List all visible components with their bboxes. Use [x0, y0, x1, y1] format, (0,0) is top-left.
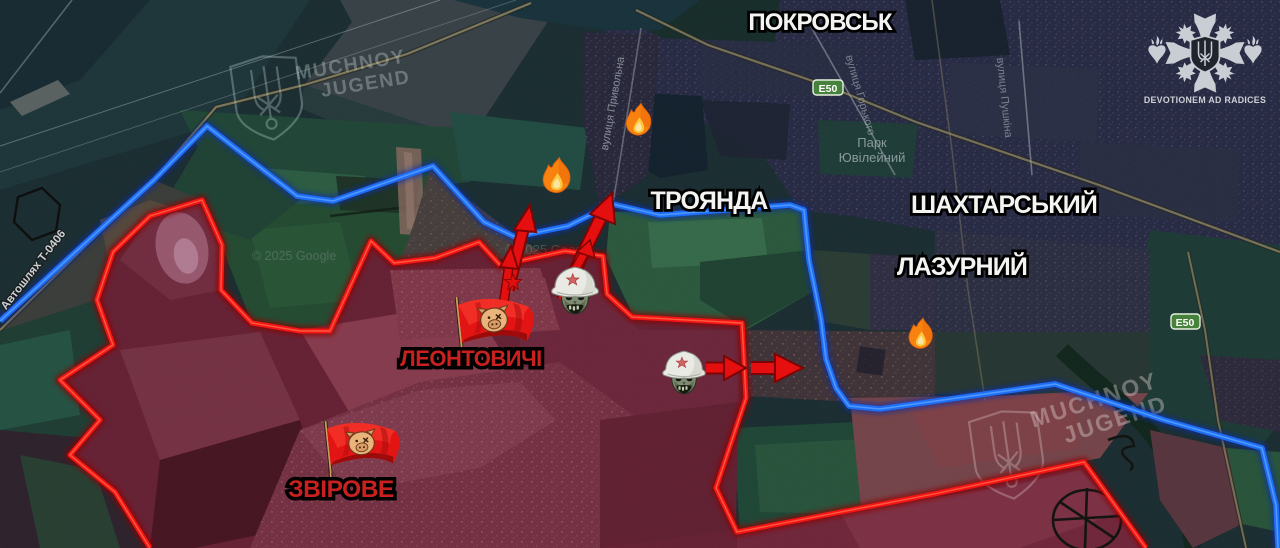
- svg-text:ПОКРОВСЬК: ПОКРОВСЬК: [748, 9, 893, 36]
- svg-text:ЛАЗУРНИЙ: ЛАЗУРНИЙ: [897, 251, 1027, 281]
- svg-text:DEVOTIONEM AD RADICES: DEVOTIONEM AD RADICES: [1144, 95, 1266, 105]
- svg-text:ЛЕОНТОВИЧІ: ЛЕОНТОВИЧІ: [400, 346, 541, 371]
- svg-text:© 2025 Google: © 2025 Google: [252, 249, 336, 263]
- svg-text:ТРОЯНДА: ТРОЯНДА: [650, 187, 768, 215]
- svg-text:ЗВІРОВЕ: ЗВІРОВЕ: [288, 476, 394, 503]
- svg-text:E50: E50: [819, 83, 838, 95]
- svg-text:E50: E50: [1176, 317, 1195, 329]
- svg-text:Ювілейний: Ювілейний: [839, 150, 906, 165]
- svg-text:ШАХТАРСЬКИЙ: ШАХТАРСЬКИЙ: [911, 189, 1097, 219]
- svg-text:Парк: Парк: [857, 135, 887, 150]
